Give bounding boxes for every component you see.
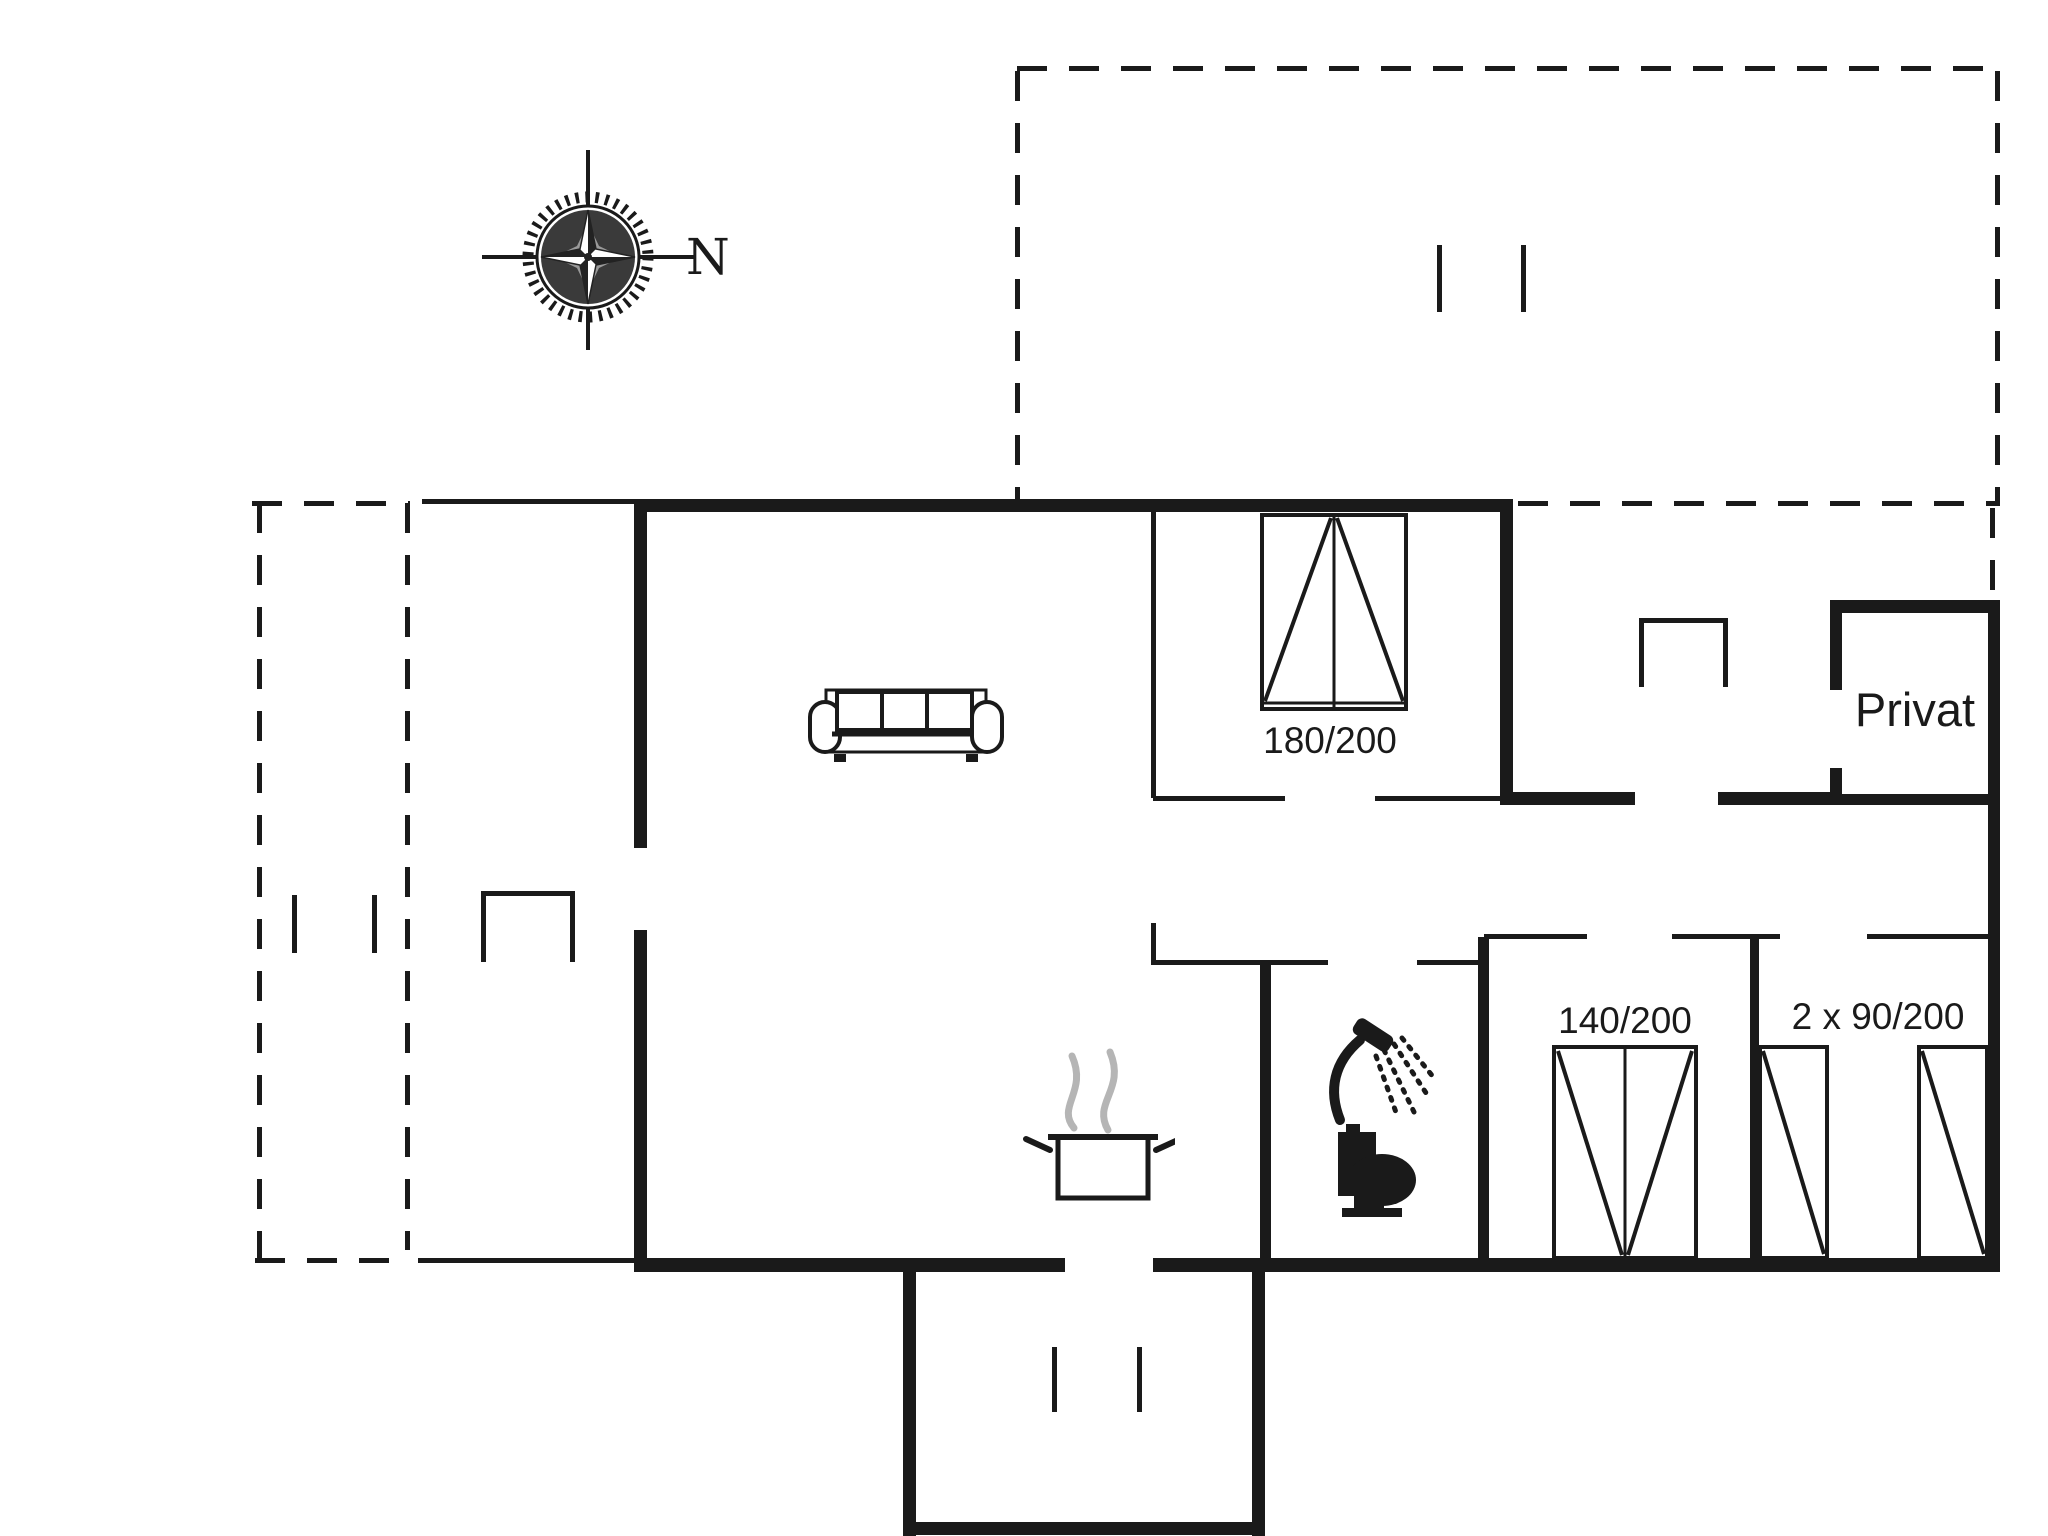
window-tick-carport-2	[372, 895, 377, 953]
wall-privat-left-stub	[1830, 768, 1842, 805]
wall-bedrooms-north-1	[1484, 934, 1587, 939]
wall-bath-west	[1260, 962, 1271, 1258]
wall-kitchen-stub	[1151, 923, 1156, 965]
window-tick-entry-2	[1137, 1347, 1142, 1412]
wall-west-lower	[634, 930, 647, 1272]
window-tick-carport-1	[292, 895, 297, 953]
window-tick-terrace-1	[1437, 245, 1442, 312]
door-bracket-entrance-top-icon	[1639, 618, 1728, 623]
bed-single-1-icon	[1758, 1045, 1829, 1260]
wall-north	[640, 499, 1513, 512]
terrace-outline-right	[1995, 71, 2000, 501]
door-bracket-entrance-left-icon	[1639, 618, 1644, 687]
wall-bath-east	[1478, 937, 1489, 1258]
entry-wall-west	[903, 1272, 916, 1536]
cooking-pot-icon	[1010, 1040, 1175, 1205]
carport-outline-west	[257, 503, 262, 1263]
sofa-icon	[806, 676, 1006, 768]
bed-140-icon	[1552, 1045, 1698, 1260]
bed-140-size-label: 140/200	[1545, 1000, 1705, 1042]
terrace-outline-top	[1017, 66, 2000, 71]
wall-west-upper	[634, 499, 647, 848]
wall-privat-left	[1830, 600, 1842, 690]
compass-north-label: N	[686, 228, 730, 286]
wall-livingroom-bedroom	[1151, 512, 1156, 798]
carport-outline-north	[252, 501, 410, 506]
wall-bedroom-south-b	[1375, 796, 1501, 801]
carport-divider	[405, 503, 410, 1250]
twin-beds-size-label: 2 x 90/200	[1778, 996, 1978, 1038]
terrace-outline-bottom-right	[1518, 501, 2000, 506]
entry-wall-south	[903, 1522, 1265, 1535]
entry-wall-east	[1252, 1272, 1265, 1536]
terrace-outline-right-lower	[1990, 508, 1995, 594]
wall-corridor-north-a	[1513, 792, 1635, 805]
toilet-icon	[1330, 1122, 1422, 1222]
wall-bedrooms-north-2	[1672, 934, 1780, 939]
door-bracket-entrance-right-icon	[1723, 618, 1728, 687]
compass-rose-icon	[468, 140, 708, 375]
carport-outline-south	[255, 1258, 410, 1263]
window-tick-terrace-2	[1521, 245, 1526, 312]
shower-icon	[1322, 1018, 1434, 1130]
bed-double-size-label: 180/200	[1255, 720, 1405, 762]
floor-plan: N	[0, 0, 2048, 1536]
wall-privat-top	[1830, 600, 2000, 613]
window-tick-entry-1	[1052, 1347, 1057, 1412]
wall-bedrooms-north-3	[1867, 934, 1988, 939]
wall-bedroom-south-a	[1153, 796, 1285, 801]
door-bracket-annex-right-icon	[570, 891, 575, 962]
bed-single-2-icon	[1917, 1045, 1989, 1260]
wall-south-left	[634, 1258, 1065, 1272]
annex-wall-north	[422, 499, 634, 504]
wall-south-right	[1153, 1258, 2000, 1272]
terrace-outline-left	[1015, 71, 1020, 503]
wall-bedroom-east	[1500, 499, 1513, 805]
wall-privat-bottom	[1842, 794, 1988, 805]
door-bracket-annex-left-icon	[481, 891, 486, 962]
wall-kitchen-corridor	[1153, 960, 1328, 965]
bed-double-180-icon	[1260, 513, 1408, 713]
annex-wall-south	[418, 1258, 634, 1263]
wall-corridor-north-b	[1718, 792, 1842, 805]
door-bracket-annex-top-icon	[481, 891, 575, 896]
privat-room-label: Privat	[1840, 682, 1990, 737]
